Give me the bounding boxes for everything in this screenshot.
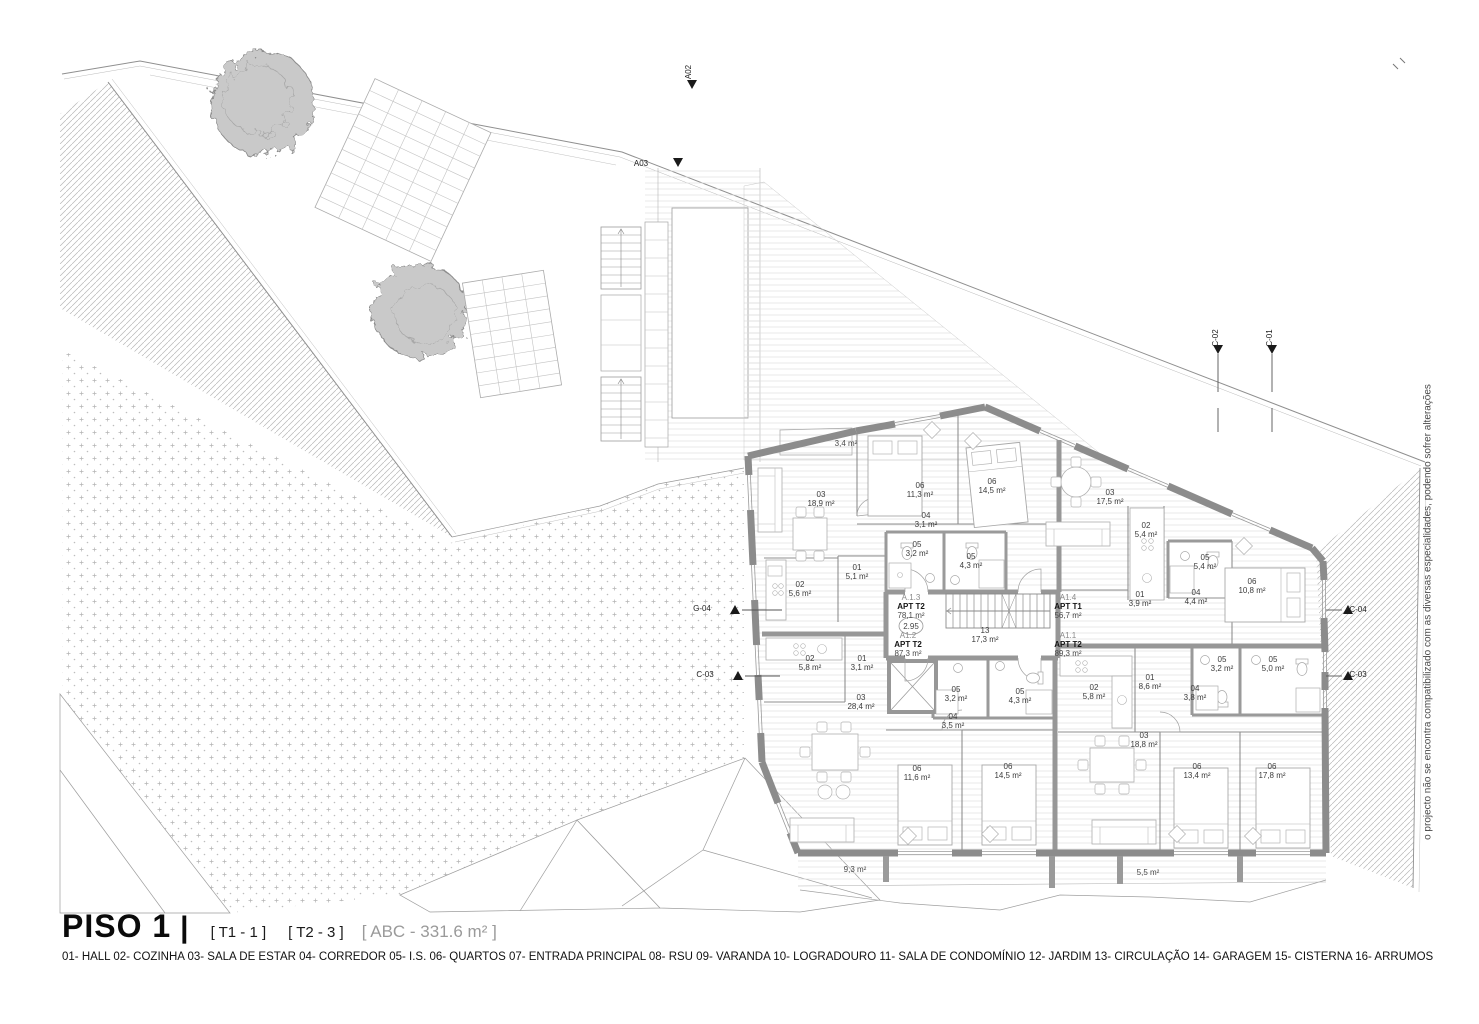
floor-plan-sheet: 0318,9 m²0611,3 m²0614,5 m²043,1 m²053,2… [0,0,1479,1024]
disclaimer-note: o projecto não se encontra compatibiliza… [1423,384,1434,840]
section-marker-label: C-03 [696,670,714,679]
room-legend: 01- HALL 02- COZINHA 03- SALA DE ESTAR 0… [62,951,1433,963]
outdoor-area-label: 3,4 m² [835,439,858,448]
floor-plan-drawing: 0318,9 m²0611,3 m²0614,5 m²043,1 m²053,2… [0,0,1479,1024]
pergola-grid-2 [462,270,561,397]
pergola-grid-1 [315,79,491,262]
planter-pool [672,208,748,418]
title-separator: | [180,911,188,944]
building [747,407,1326,910]
tag-t2: [ T2 - 3 ] [288,924,344,941]
level-badge: 2.95 [903,622,919,631]
stairs-flight-upper [601,227,641,289]
section-marker-label: G-04 [693,604,711,613]
elevator [889,661,936,712]
core-stairs [946,594,1050,628]
stairs-landing [601,295,641,371]
outdoor-area-label: 9,3 m² [844,865,867,874]
terrain-line [800,880,1326,910]
title-block: PISO 1|[ T1 - 1 ][ T2 - 3 ][ ABC - 331.6… [62,908,497,945]
stairs-flight-lower [601,377,641,441]
section-marker-label: C-02 [1211,329,1220,347]
section-marker-label: C-03 [1349,670,1367,679]
fold-marks [1393,58,1405,69]
section-marker-label: A03 [634,159,649,168]
section-marker-label: C-01 [1265,329,1274,347]
exterior-walkway [601,168,760,462]
page-title: PISO 1 [62,908,171,944]
section-marker-label: C-04 [1349,605,1367,614]
section-marker-label: A02 [684,64,693,79]
tag-t1: [ T1 - 1 ] [211,924,267,941]
tag-abc-area: [ ABC - 331.6 m² ] [362,922,497,941]
outdoor-area-label: 5,5 m² [1137,868,1160,877]
